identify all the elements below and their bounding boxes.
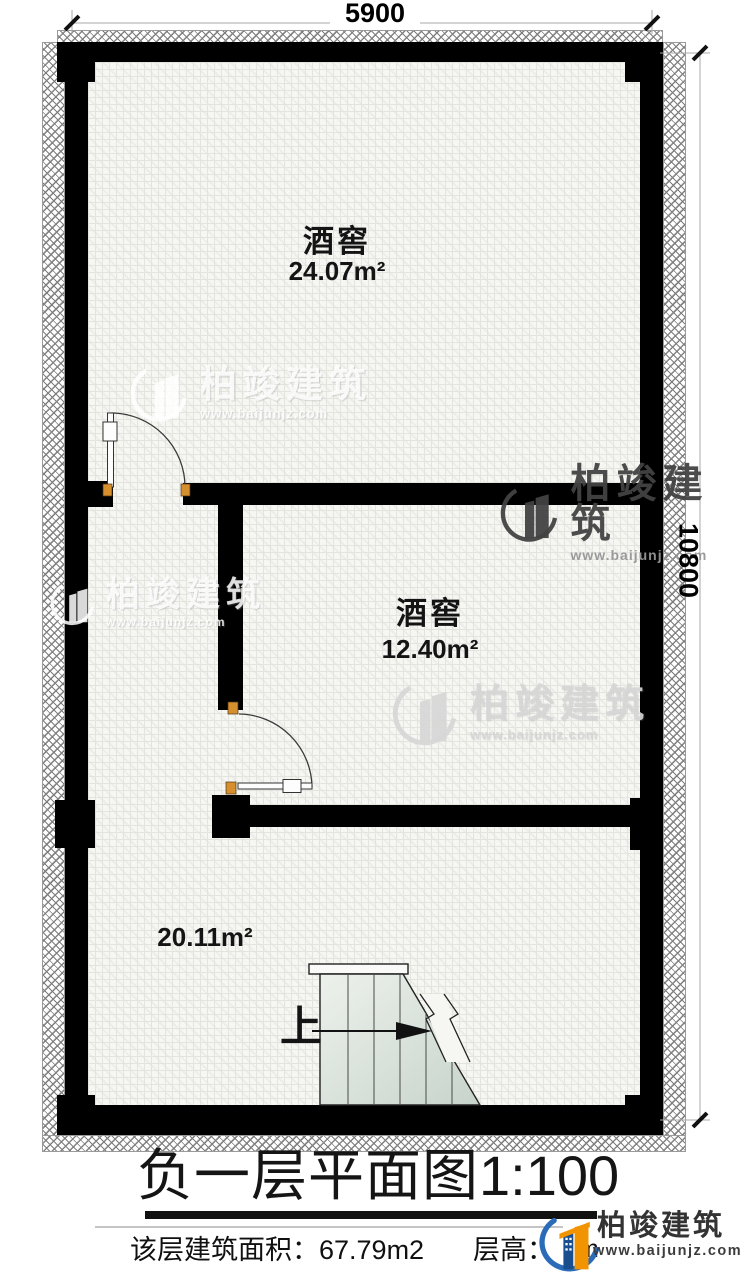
drawing-scale: 1:100 xyxy=(479,1148,619,1204)
stairs-up-label: 上 xyxy=(279,1005,323,1049)
drawing-title: 负一层平面图 1:100 xyxy=(137,1148,619,1204)
room2-name: 酒窖 xyxy=(370,598,490,631)
dimension-top-label: 5900 xyxy=(330,0,420,27)
floor-area-value: 67.79m2 xyxy=(319,1235,424,1265)
door-panel xyxy=(283,780,301,793)
door-hinge-marker xyxy=(103,484,112,496)
door-hinge-marker xyxy=(181,484,190,496)
door-hinge-marker xyxy=(226,782,236,794)
door-2 xyxy=(226,702,312,794)
floor-area-label: 该层建筑面积： xyxy=(130,1235,319,1265)
title-underline-thin xyxy=(95,1226,563,1228)
room3-area: 20.11m² xyxy=(125,924,285,951)
door-1 xyxy=(103,413,190,496)
title-underline-thick xyxy=(145,1211,597,1219)
floor-area-info: 该层建筑面积：67.79m2 xyxy=(130,1237,424,1264)
door-panel xyxy=(103,422,117,441)
door-swing-arc xyxy=(111,413,185,487)
brand-url: www.baijunjz.com xyxy=(593,1244,742,1259)
room1-name: 酒窖 xyxy=(277,226,397,259)
drawing-title-text: 负一层平面图 xyxy=(137,1148,479,1204)
floorplan-sheet: 柏竣建筑 www.baijunjz.com 柏竣建筑 www.baijunjz.… xyxy=(0,0,750,1276)
room1-area: 24.07m² xyxy=(257,258,417,285)
door-swing-arc xyxy=(239,714,312,787)
brand-name: 柏竣建筑 xyxy=(597,1212,725,1241)
stair-landing xyxy=(309,964,408,974)
staircase xyxy=(309,964,480,1105)
dimension-right-label: 10800 xyxy=(675,511,702,611)
room2-area: 12.40m² xyxy=(350,636,510,663)
door-hinge-marker xyxy=(228,702,238,714)
